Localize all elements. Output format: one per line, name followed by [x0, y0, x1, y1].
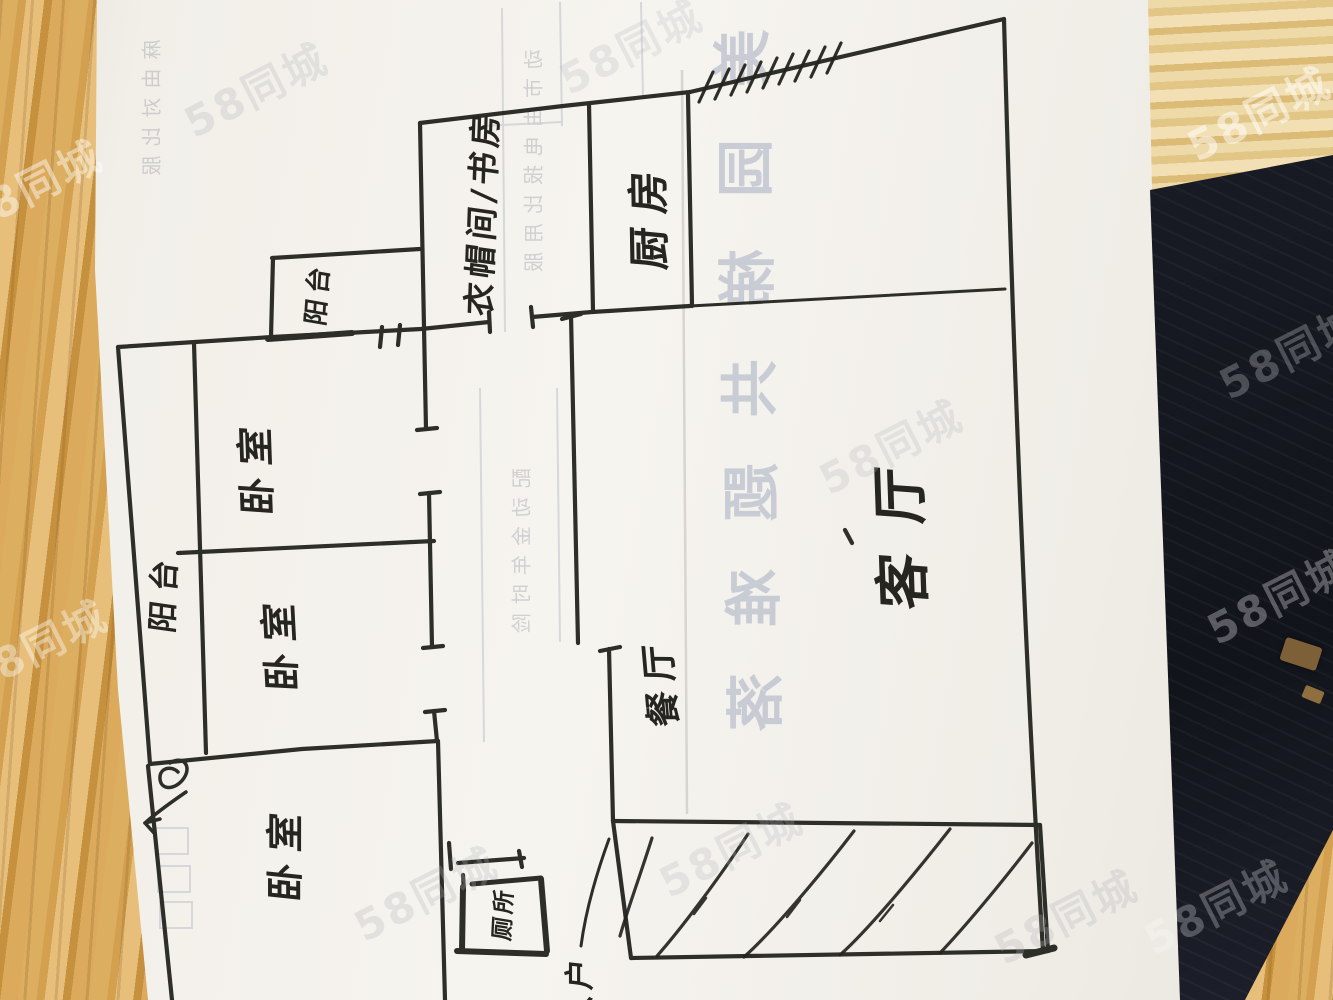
window-tick: [380, 327, 382, 347]
wall-main-vertical: [420, 123, 426, 429]
room-label-storage-study: 衣帽间/书房: [452, 105, 507, 319]
door-cap: [417, 428, 437, 430]
wall-storage-kitchen-divider: [589, 104, 593, 311]
wall-bedroom3-left: [148, 766, 172, 1000]
wall-lower-balcony: [613, 821, 631, 958]
room-label-bedroom-3: 卧室: [255, 798, 310, 904]
wall-main-vertical: [434, 711, 437, 741]
door-cap: [531, 307, 533, 327]
room-label-entry: 入户: [555, 951, 599, 1000]
room-label-bay-window: 阳台: [295, 258, 336, 328]
window-tick: [398, 325, 400, 345]
wall-mid-horizontal: [532, 306, 690, 317]
toilet-wall: [457, 951, 546, 954]
window-hash-ticks: [699, 43, 841, 102]
wall-bedroom3-top: [150, 741, 438, 764]
wall-kitchen-right: [688, 95, 692, 306]
wall-balcony-inner: [194, 343, 206, 753]
wall-right-outer: [1004, 19, 1043, 951]
room-label-bedroom-1: 卧室: [224, 413, 283, 517]
wall-main-vertical: [429, 493, 432, 647]
wall-bay-top: [272, 249, 420, 258]
room-label-balcony: 阳台: [137, 547, 185, 635]
entry-door-arc: [581, 839, 609, 946]
wall-living-left: [609, 649, 613, 821]
photo-of-floorplan: 美 园 梯 共 题 难 落 动市由电报比用服 配动金年时险 麻由对比服: [0, 0, 1333, 1000]
toilet-tick: [519, 851, 522, 867]
wall-kitchen-living-boundary: [690, 289, 1005, 306]
door-cap: [420, 492, 440, 494]
wall-dining-divider: [571, 315, 578, 643]
ink-dash: [845, 530, 852, 543]
room-label-kitchen: 厨房: [614, 154, 677, 271]
wall-bay-left: [271, 258, 273, 337]
wall-bedroom-divider: [178, 541, 434, 553]
door-cap: [425, 710, 445, 712]
room-label-bedroom-2: 卧室: [247, 590, 307, 693]
room-label-dining: 餐厅: [628, 635, 688, 728]
toilet-wall: [541, 879, 547, 951]
door-cap: [423, 646, 443, 648]
wall-lower-balcony: [613, 821, 1040, 825]
wall-bay-bottom: [268, 333, 352, 339]
door-cap: [600, 647, 620, 651]
